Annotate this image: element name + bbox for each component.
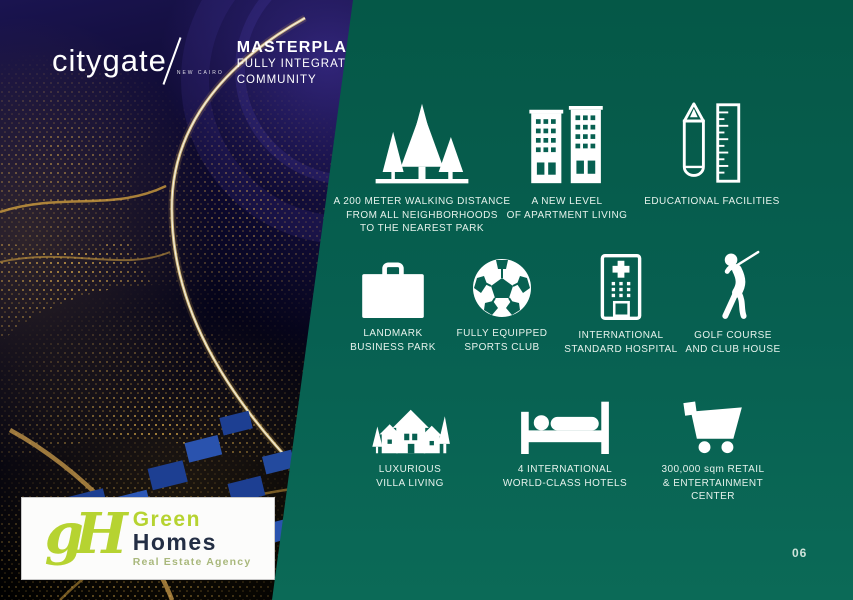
caption-line: BUSINESS PARK	[350, 341, 436, 355]
green-homes-logo: gH Green Homes Real Estate Agency	[21, 497, 275, 580]
feature-golf-caption: GOLF COURSE AND CLUB HOUSE	[685, 329, 780, 356]
feature-education: EDUCATIONAL FACILITIES	[632, 100, 792, 209]
slide-title: MASTERPLAN	[237, 38, 364, 57]
caption-line: & ENTERTAINMENT	[662, 477, 765, 491]
caption-line: SPORTS CLUB	[457, 341, 548, 355]
caption-line: FULLY EQUIPPED	[457, 327, 548, 341]
caption-line: 300,000 sqm RETAIL	[662, 463, 765, 477]
feature-hospital-caption: INTERNATIONAL STANDARD HOSPITAL	[564, 329, 677, 356]
feature-retail: 300,000 sqm RETAIL & ENTERTAINMENT CENTE…	[634, 398, 792, 504]
gh-name-homes: Homes	[133, 531, 252, 554]
gh-monogram: gH	[45, 515, 119, 554]
feature-park: A 200 METER WALKING DISTANCE FROM ALL NE…	[332, 102, 512, 236]
golfer-icon	[702, 250, 764, 320]
shopping-cart-icon	[681, 398, 745, 454]
caption-line: WORLD-CLASS HOTELS	[503, 477, 627, 491]
citygate-logo: citygate NEW CAIRO	[52, 36, 224, 76]
caption-line: 4 INTERNATIONAL	[503, 463, 627, 477]
soccer-ball-icon	[472, 256, 532, 318]
feature-park-caption: A 200 METER WALKING DISTANCE FROM ALL NE…	[333, 195, 510, 236]
feature-villas: LUXURIOUS VILLA LIVING	[330, 396, 490, 490]
briefcase-icon	[362, 262, 424, 318]
feature-apartments: A NEW LEVEL OF APARTMENT LIVING	[492, 104, 642, 222]
caption-line: FROM ALL NEIGHBORHOODS	[333, 209, 510, 223]
pencil-ruler-icon	[681, 100, 743, 186]
brand-header: citygate NEW CAIRO MASTERPLAN FULLY INTE…	[52, 36, 364, 88]
feature-villas-caption: LUXURIOUS VILLA LIVING	[376, 463, 444, 490]
feature-hotels-caption: 4 INTERNATIONAL WORLD-CLASS HOTELS	[503, 463, 627, 490]
hospital-icon	[600, 254, 642, 320]
caption-line: GOLF COURSE	[685, 329, 780, 343]
feature-hotels: 4 INTERNATIONAL WORLD-CLASS HOTELS	[487, 400, 643, 490]
caption-line: LUXURIOUS	[376, 463, 444, 477]
citygate-sub-label: NEW CAIRO	[177, 70, 224, 76]
caption-line: A NEW LEVEL	[507, 195, 628, 209]
feature-apartments-caption: A NEW LEVEL OF APARTMENT LIVING	[507, 195, 628, 222]
citygate-wordmark-city: citygate	[52, 45, 167, 76]
caption-line: OF APARTMENT LIVING	[507, 209, 628, 223]
caption-line: AND CLUB HOUSE	[685, 343, 780, 357]
caption-line: CENTER	[662, 490, 765, 504]
gh-name-green: Green	[133, 509, 252, 530]
caption-line: A 200 METER WALKING DISTANCE	[333, 195, 510, 209]
caption-line: VILLA LIVING	[376, 477, 444, 491]
feature-education-caption: EDUCATIONAL FACILITIES	[644, 195, 779, 209]
masterplan-slide: citygate NEW CAIRO MASTERPLAN FULLY INTE…	[0, 0, 853, 600]
apartment-buildings-icon	[529, 104, 605, 186]
caption-line: LANDMARK	[350, 327, 436, 341]
caption-line: EDUCATIONAL FACILITIES	[644, 195, 779, 209]
caption-line: STANDARD HOSPITAL	[564, 343, 677, 357]
villa-houses-icon	[357, 396, 463, 454]
caption-line: TO THE NEAREST PARK	[333, 222, 510, 236]
feature-business-park-caption: LANDMARK BUSINESS PARK	[350, 327, 436, 354]
park-trees-icon	[370, 102, 474, 186]
caption-line: INTERNATIONAL	[564, 329, 677, 343]
gh-tagline: Real Estate Agency	[133, 557, 252, 568]
feature-sports-club-caption: FULLY EQUIPPED SPORTS CLUB	[457, 327, 548, 354]
feature-retail-caption: 300,000 sqm RETAIL & ENTERTAINMENT CENTE…	[662, 463, 765, 504]
hotel-bed-icon	[515, 400, 615, 454]
feature-golf: GOLF COURSE AND CLUB HOUSE	[663, 250, 803, 356]
page-number: 06	[792, 546, 807, 560]
